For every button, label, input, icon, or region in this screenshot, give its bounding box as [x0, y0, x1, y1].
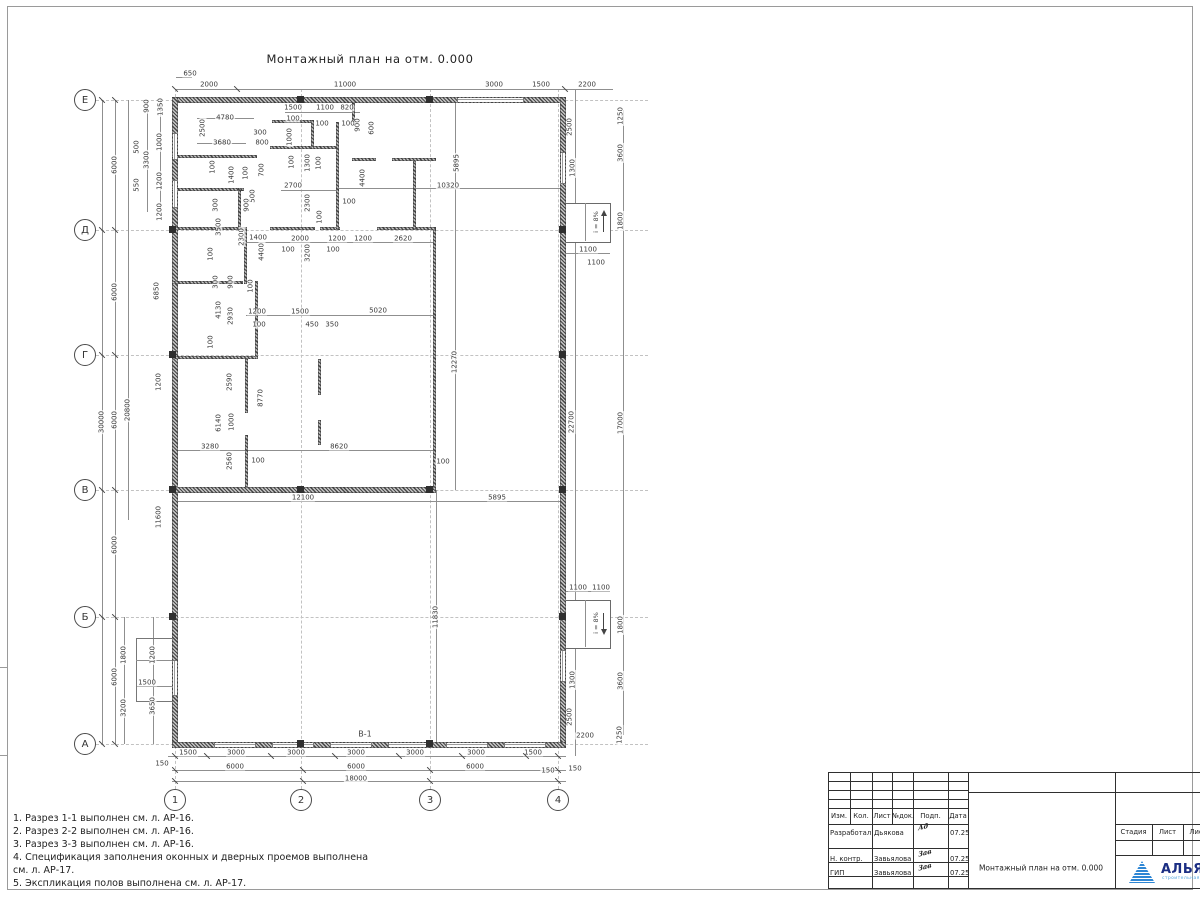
dim-label: 18000 — [344, 776, 368, 783]
axis-circle-Б: Б — [74, 606, 96, 628]
dim-label: 3300 — [144, 150, 151, 170]
dim-label: 100 — [243, 165, 250, 180]
dim-label: 900 — [355, 117, 362, 132]
signature: Ад — [918, 822, 928, 833]
sheet: Монтажный план на отм. 0.000 ЕДГВБА1234 — [0, 0, 1200, 900]
notes-list: 1. Разрез 1-1 выполнен см. л. АР-16.2. Р… — [13, 812, 368, 890]
dim-label: 17000 — [618, 411, 625, 435]
dim-label: 100 — [314, 121, 329, 128]
dim-label: 6000 — [346, 764, 366, 771]
dim-label: 1300 — [570, 670, 577, 690]
dim-label: 300 — [213, 274, 220, 289]
ramp-arrow-icon — [603, 212, 604, 232]
titleblock-rows: Разработал Дьякова Ад 07.25 Н. контр. За… — [828, 824, 968, 888]
dim-label: 6000 — [112, 282, 119, 302]
dim-label: 1200 — [327, 236, 347, 243]
dim-label: 22700 — [569, 410, 576, 434]
dim-label: 1100 — [586, 260, 606, 267]
dim-label: 2500 — [567, 707, 574, 727]
dim-label: 4130 — [216, 300, 223, 320]
stage-header: СтадияЛистЛист — [1115, 824, 1200, 840]
dim-label: 12100 — [291, 495, 315, 502]
dim-label: 100 — [248, 278, 255, 293]
dim-label: 1200 — [353, 236, 373, 243]
dim-label: 3500 — [216, 217, 223, 237]
dim-label: 12270 — [452, 350, 459, 374]
signature: Зав — [918, 847, 932, 859]
date-value: 07.25 — [950, 869, 969, 877]
dim-label: 3000 — [346, 750, 366, 757]
frame-left — [7, 6, 8, 890]
dim-label: 650 — [182, 71, 197, 78]
dim-label: 6140 — [216, 413, 223, 433]
dim-label: 1200 — [247, 309, 267, 316]
axis-circle-Г: Г — [74, 344, 96, 366]
dim-label: 1400 — [248, 235, 268, 242]
role-label: Разработал — [830, 829, 871, 837]
dim-label: 2200 — [577, 82, 597, 89]
dim-label: 1100 — [578, 247, 598, 254]
dim-label: 900 — [144, 98, 151, 113]
dim-label: 6850 — [154, 281, 161, 301]
ramp-label: i = 8% — [592, 211, 600, 233]
dim-label: 3000 — [466, 750, 486, 757]
dim-label: 1500 — [178, 750, 198, 757]
dim-label: 3000 — [405, 750, 425, 757]
plan-section-label: В-1 — [358, 730, 371, 739]
dim-label: 3200 — [305, 243, 312, 263]
stage-col: Лист — [1183, 828, 1200, 836]
titleblock-row: Н. контр. Завьялова Зав 07.25 — [828, 852, 968, 866]
dim-label: 6000 — [225, 764, 245, 771]
dim-label: 3000 — [226, 750, 246, 757]
frame-top — [7, 6, 1193, 7]
dim-label: 3650 — [150, 696, 157, 716]
dim-label: 5895 — [487, 495, 507, 502]
dim-label: 100 — [435, 459, 450, 466]
dim-label: 3600 — [618, 671, 625, 691]
dim-label: 6000 — [112, 155, 119, 175]
dim-label: 2300 — [305, 193, 312, 213]
dim-label: 2930 — [228, 306, 235, 326]
axis-line — [558, 89, 559, 789]
dim-label: 2000 — [199, 82, 219, 89]
dim-label: 100 — [208, 334, 215, 349]
dim-label: 8620 — [329, 444, 349, 451]
dim-label: 1000 — [287, 127, 294, 147]
dim-label: 2300 — [239, 227, 246, 247]
dim-label: 150 — [154, 761, 169, 768]
dim-label: 11000 — [333, 82, 357, 89]
axis-circle-Д: Д — [74, 219, 96, 241]
dim-label: 8770 — [258, 388, 265, 408]
dim-label: 1200 — [157, 171, 164, 191]
dim-label: 6000 — [112, 535, 119, 555]
role-label: Н. контр. — [830, 855, 863, 863]
dim-label: 4400 — [360, 168, 367, 188]
dim-label: 1200 — [150, 645, 157, 665]
dim-label: 1500 — [137, 680, 157, 687]
dim-label: 5895 — [454, 153, 461, 173]
dim-label: 1300 — [305, 153, 312, 173]
dim-label: 2590 — [227, 372, 234, 392]
dim-label: 700 — [259, 162, 266, 177]
dim-label: 3000 — [484, 82, 504, 89]
dim-label: 350 — [324, 322, 339, 329]
drawing-title: Монтажный план на отм. 0.000 — [250, 52, 490, 66]
dim-label: 1100 — [591, 585, 611, 592]
titleblock-row: Разработал Дьякова Ад 07.25 — [828, 826, 968, 840]
dim-label: 600 — [369, 120, 376, 135]
logo-triangle-icon — [1129, 861, 1155, 883]
dim-label: 1400 — [229, 165, 236, 185]
note-line: 1. Разрез 1-1 выполнен см. л. АР-16. — [13, 812, 368, 825]
dim-label: 100 — [251, 322, 266, 329]
dim-label: 1100 — [568, 585, 588, 592]
header-col: Кол. — [850, 812, 872, 820]
dim-label: 20800 — [125, 398, 132, 422]
dim-label: 11600 — [156, 505, 163, 529]
dim-label: 100 — [317, 209, 324, 224]
fold-mark — [0, 755, 7, 756]
dim-label: 1000 — [229, 412, 236, 432]
person-name: Дьякова — [874, 829, 904, 837]
dim-label: 1100 — [315, 105, 335, 112]
ramp-arrow-icon — [603, 613, 604, 633]
dim-label: 3280 — [200, 444, 220, 451]
logo-subtitle: строительная компания — [1162, 876, 1200, 881]
dim-label: 2500 — [567, 117, 574, 137]
axis-line — [301, 89, 302, 789]
dim-label: 500 — [250, 188, 257, 203]
dim-label: 5020 — [368, 308, 388, 315]
dim-label: 450 — [304, 322, 319, 329]
axis-circle-4: 4 — [547, 789, 569, 811]
axis-circle-А: А — [74, 733, 96, 755]
dim-label: 100 — [325, 247, 340, 254]
header-col: №док. — [892, 812, 913, 820]
dim-label: 3000 — [286, 750, 306, 757]
dim-label: 500 — [134, 139, 141, 154]
dim-label: 3200 — [121, 698, 128, 718]
dim-label: 2620 — [393, 236, 413, 243]
dim-label: 1500 — [531, 82, 551, 89]
axis-circle-2: 2 — [290, 789, 312, 811]
dim-label: 150 — [567, 766, 582, 773]
note-line: 4. Спецификация заполнения оконных и две… — [13, 851, 368, 864]
dim-label: 100 — [341, 199, 356, 206]
date-value: 07.25 — [950, 829, 969, 837]
dim-label: 6000 — [465, 764, 485, 771]
header-col: Подп. — [913, 812, 948, 820]
dim-label: 100 — [210, 159, 217, 174]
signature: Зав — [918, 861, 932, 873]
dim-label: 1000 — [157, 132, 164, 152]
frame-right — [1192, 6, 1193, 890]
dim-label: 820 — [339, 105, 354, 112]
date-value: 07.25 — [950, 855, 969, 863]
dim-label: 300 — [252, 130, 267, 137]
dim-label: 30000 — [99, 410, 106, 434]
header-col: Дата — [948, 812, 968, 820]
dim-label: 2200 — [575, 733, 595, 740]
header-col: Изм. — [828, 812, 850, 820]
role-label: ГИП — [830, 869, 844, 877]
person-name: Завьялова — [874, 869, 911, 877]
dim-label: 1200 — [157, 202, 164, 222]
dim-label: 11830 — [433, 605, 440, 629]
dim-label: 100 — [316, 155, 323, 170]
stage-col: Лист — [1152, 828, 1183, 836]
note-line: 2. Разрез 2-2 выполнен см. л. АР-16. — [13, 825, 368, 838]
header-col: Лист — [872, 812, 892, 820]
dim-label: 1500 — [283, 105, 303, 112]
dim-label: 1200 — [156, 372, 163, 392]
note-line: 3. Разрез 3-3 выполнен см. л. АР-16. — [13, 838, 368, 851]
dim-label: 100 — [250, 458, 265, 465]
logo-name: АЛЬЯНС — [1161, 862, 1200, 877]
dim-label: 1300 — [570, 158, 577, 178]
dim-label: 2560 — [227, 451, 234, 471]
dim-label: 900 — [244, 197, 251, 212]
dim-label: 900 — [228, 274, 235, 289]
note-line: 5. Экспликация полов выполнена см. л. АР… — [13, 877, 368, 890]
note-line: см. л. АР-17. — [13, 864, 368, 877]
dim-label: 1500 — [290, 309, 310, 316]
title-block: Изм.Кол.Лист№док.Подп.Дата Разработал Дь… — [828, 772, 1200, 890]
dim-label: 150 — [540, 768, 555, 775]
dim-label: 100 — [280, 247, 295, 254]
axis-circle-3: 3 — [419, 789, 441, 811]
dim-label: 2000 — [290, 236, 310, 243]
dim-label: 1350 — [158, 97, 165, 117]
axis-circle-Е: Е — [74, 89, 96, 111]
dim-label: 800 — [254, 140, 269, 147]
dim-label: 6000 — [112, 667, 119, 687]
titleblock-header: Изм.Кол.Лист№док.Подп.Дата — [828, 808, 968, 824]
dim-label: 1800 — [121, 645, 128, 665]
dim-label: 2500 — [200, 118, 207, 138]
dim-label: 3680 — [212, 140, 232, 147]
dim-label: 6000 — [112, 410, 119, 430]
dim-label: 1250 — [617, 725, 624, 745]
axis-circle-В: В — [74, 479, 96, 501]
dim-label: 100 — [208, 246, 215, 261]
titleblock-row: ГИП Завьялова Зав 07.25 — [828, 866, 968, 880]
logo: АЛЬЯНС строительная компания — [1115, 856, 1200, 888]
dim-label: 4780 — [215, 115, 235, 122]
ramp-label: i = 8% — [592, 612, 600, 634]
dim-label: 100 — [289, 154, 296, 169]
dim-label: 2700 — [283, 183, 303, 190]
fold-mark — [0, 667, 7, 668]
dim-label: 3600 — [618, 143, 625, 163]
dim-label: 1250 — [618, 106, 625, 126]
dim-label: 100 — [285, 116, 300, 123]
axis-circle-1: 1 — [164, 789, 186, 811]
stage-col: Стадия — [1115, 828, 1152, 836]
dim-label: 4400 — [259, 242, 266, 262]
dim-label: 550 — [134, 177, 141, 192]
dim-label: 1800 — [618, 211, 625, 231]
dim-label: 10320 — [436, 183, 460, 190]
dim-label: 300 — [213, 197, 220, 212]
dim-label: 1800 — [618, 615, 625, 635]
doc-title: Монтажный план на отм. 0.000 — [979, 864, 1103, 873]
person-name: Завьялова — [874, 855, 911, 863]
axis-line — [430, 89, 431, 789]
